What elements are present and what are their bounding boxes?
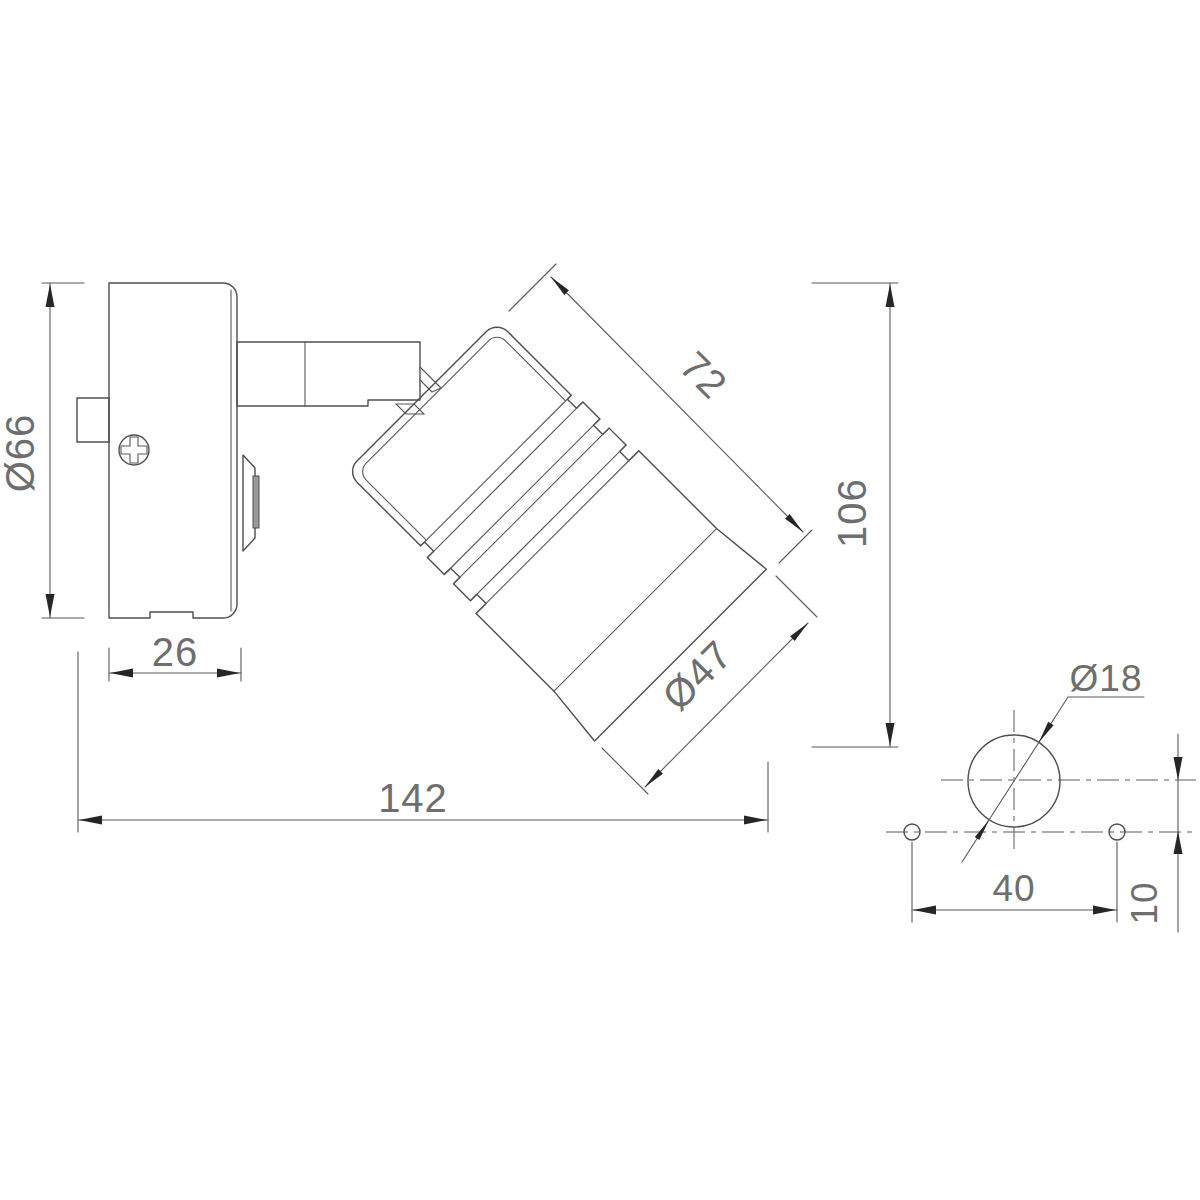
- arm-outline: [237, 342, 420, 406]
- technical-drawing-page: Ø66 26 142 72 106 Ø47: [0, 0, 1200, 1200]
- dim72-arrow-lower: [785, 514, 803, 532]
- dim40-arrow-right: [1093, 906, 1116, 915]
- dim142-label: 142: [378, 776, 448, 820]
- dim18-arrow-upper: [1039, 722, 1054, 742]
- dim72-line: [551, 277, 803, 532]
- dim26-label: 26: [152, 630, 199, 674]
- dim106-arrow-top: [886, 284, 895, 307]
- dim-hole-offset: 10: [1124, 734, 1183, 932]
- cap-shoulder-line: [358, 332, 566, 540]
- dim47-arrow-upper: [790, 623, 808, 641]
- dim47-arrow-lower: [645, 769, 663, 787]
- dim-canopy-diameter: Ø66: [0, 283, 84, 618]
- dim-hole-spacing: 40: [912, 842, 1117, 922]
- dim-hole-diameter: Ø18: [962, 658, 1144, 862]
- dim18-label: Ø18: [1070, 658, 1143, 699]
- dim10-arrow-top: [1174, 757, 1183, 780]
- screw-cross-icon: [121, 437, 147, 463]
- dim142-arrow-left: [79, 816, 102, 825]
- wall-tab: [77, 398, 109, 442]
- dim40-label: 40: [992, 868, 1035, 909]
- dim66-label: Ø66: [0, 414, 42, 493]
- dim10-label: 10: [1124, 881, 1165, 924]
- dim-overall-height: 106: [812, 283, 898, 747]
- bracket-outline: [109, 283, 237, 618]
- screw-head-icon: [119, 435, 149, 465]
- mounting-plate-detail: Ø18 40 10: [886, 658, 1196, 932]
- dim18-arrow-lower: [975, 820, 989, 840]
- dim66-arrow-bottom: [46, 594, 55, 617]
- dim66-arrow-top: [46, 284, 55, 307]
- lamp-head-section-lines: [415, 389, 717, 691]
- mounting-arm: [237, 342, 441, 414]
- dim-head-length: 72: [509, 264, 812, 563]
- dim72-extension-lines: [509, 264, 812, 563]
- dim106-label: 106: [830, 478, 874, 548]
- wall-bracket: [77, 283, 259, 618]
- dim142-arrow-right: [744, 816, 767, 825]
- dim-canopy-depth: 26: [109, 630, 241, 681]
- dim72-label: 72: [672, 343, 736, 407]
- knob-knurl-band: [253, 476, 259, 528]
- dim10-arrow-bottom: [1174, 831, 1183, 854]
- dim106-arrow-bottom: [886, 723, 895, 746]
- dim47-line: [645, 623, 808, 787]
- drawing-canvas: Ø66 26 142 72 106 Ø47: [0, 0, 1200, 1200]
- dim26-arrow-left: [110, 669, 133, 678]
- dim47-label: Ø47: [654, 632, 741, 719]
- dim40-arrow-left: [913, 906, 936, 915]
- dim66-extension-lines: [42, 283, 84, 618]
- dim-head-diameter: Ø47: [602, 576, 817, 794]
- dim72-arrow-upper: [551, 277, 569, 295]
- dim26-arrow-right: [217, 669, 240, 678]
